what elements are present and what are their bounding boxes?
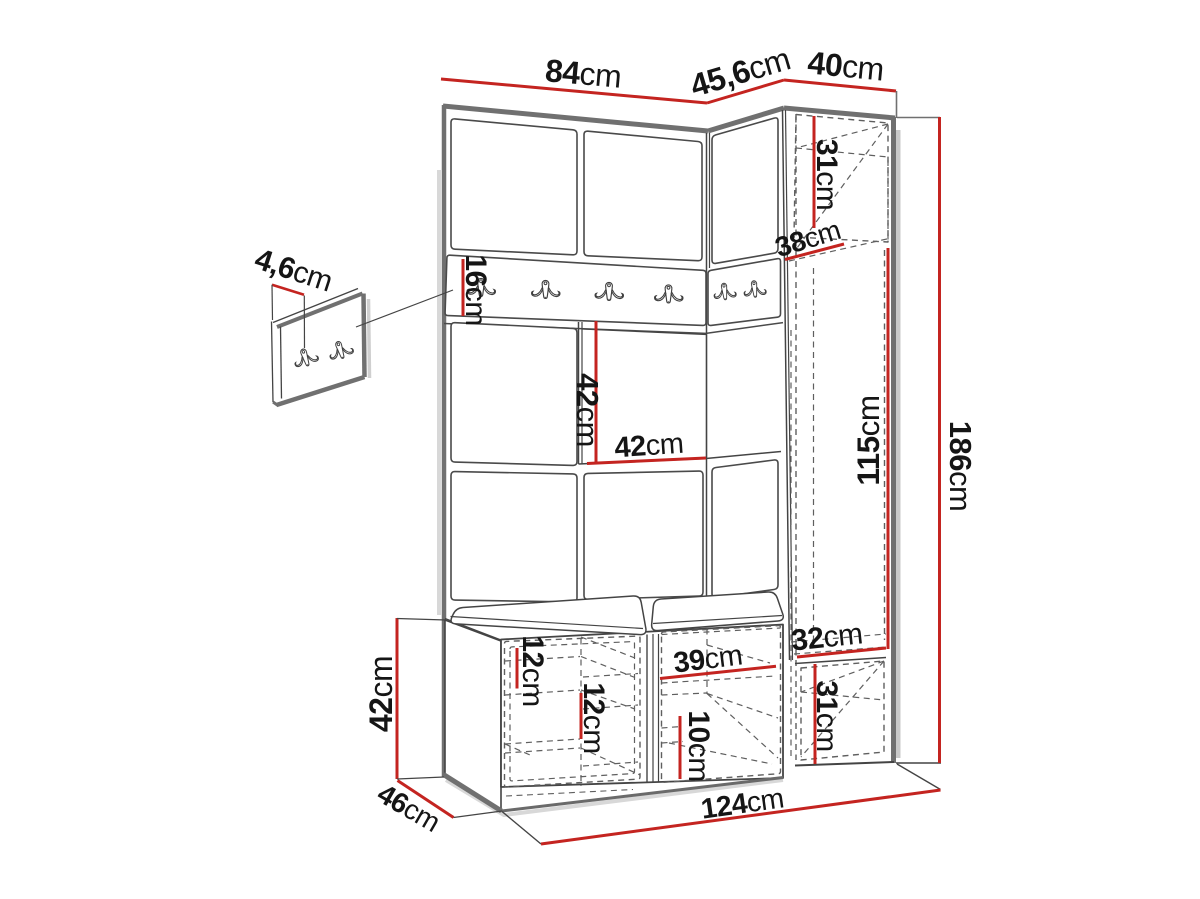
svg-text:10cm: 10cm — [682, 710, 715, 781]
svg-text:12cm: 12cm — [516, 635, 549, 706]
svg-text:42cm: 42cm — [613, 427, 684, 464]
svg-text:115cm: 115cm — [850, 395, 886, 485]
svg-text:42cm: 42cm — [570, 373, 605, 447]
svg-text:186cm: 186cm — [943, 421, 978, 512]
svg-text:84cm: 84cm — [544, 53, 623, 96]
svg-text:31cm: 31cm — [810, 680, 843, 751]
svg-text:40cm: 40cm — [806, 45, 885, 88]
svg-text:42cm: 42cm — [363, 656, 399, 732]
svg-text:16cm: 16cm — [459, 254, 492, 325]
svg-text:12cm: 12cm — [577, 682, 610, 753]
svg-text:31cm: 31cm — [810, 139, 843, 210]
